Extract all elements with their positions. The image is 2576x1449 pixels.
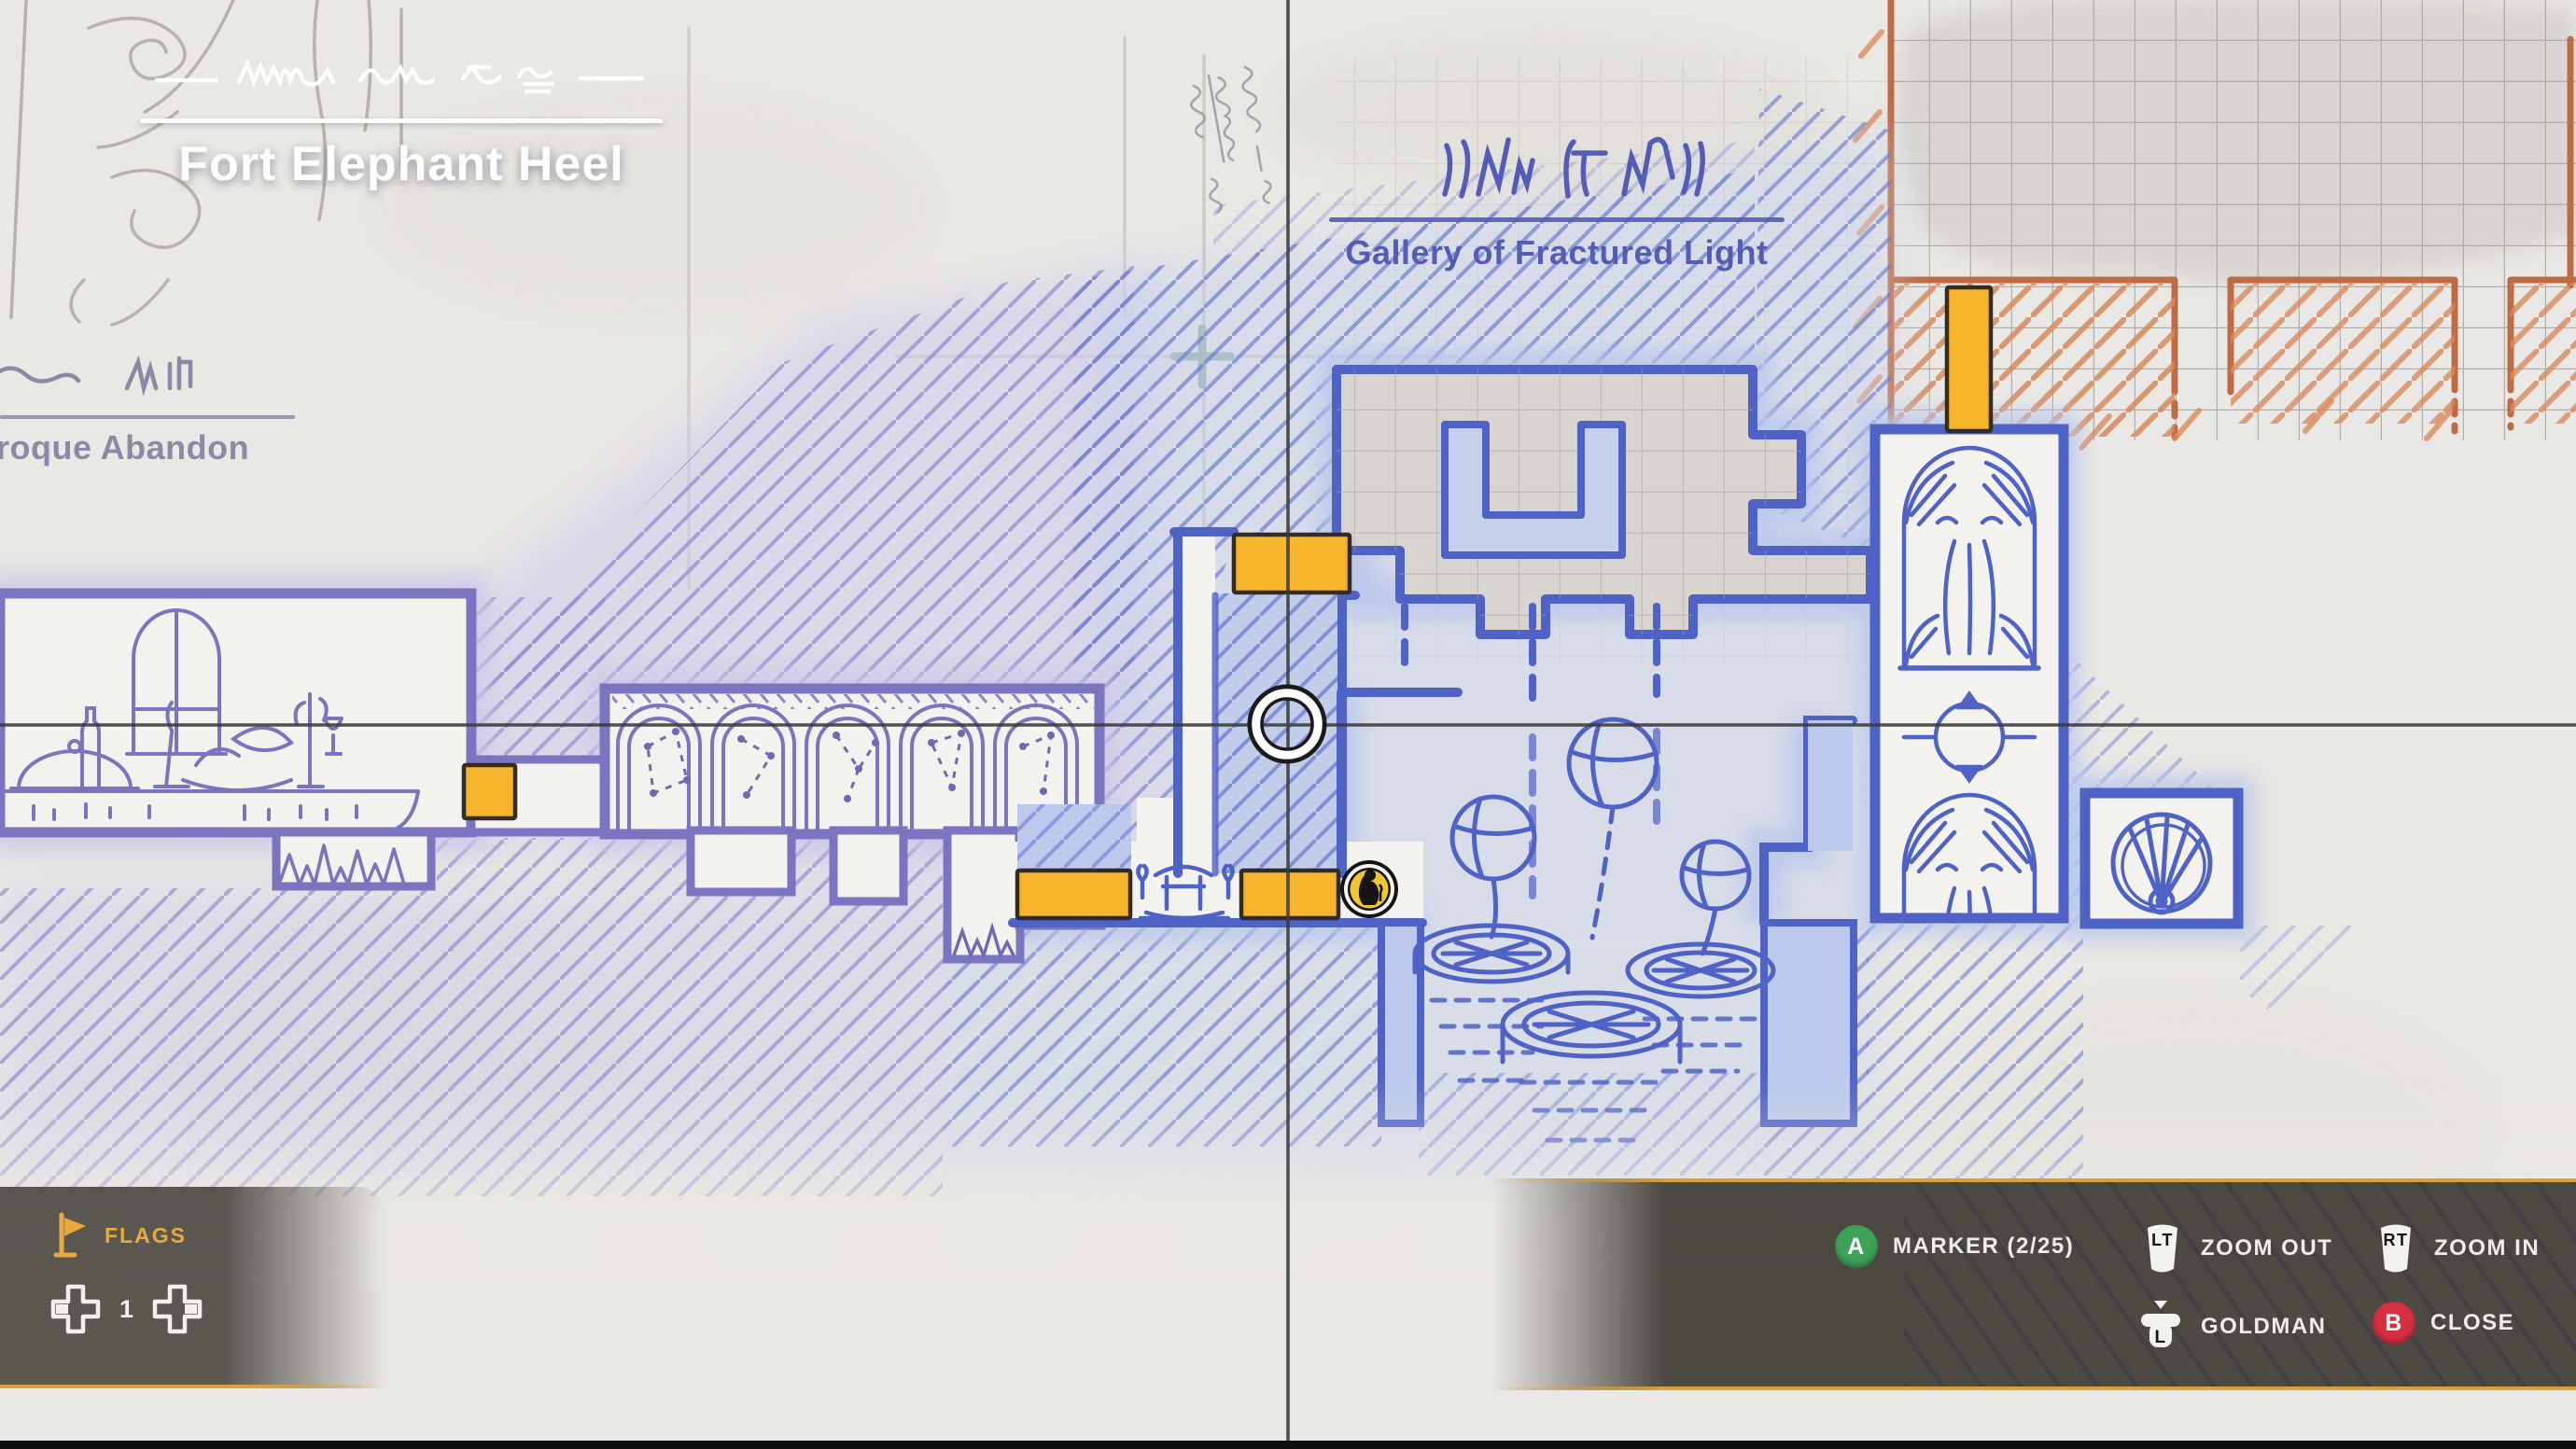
b-button-icon[interactable]: B [2373,1302,2415,1345]
label-rule [1329,217,1785,222]
label-rule [0,415,295,419]
region-title: Fort Elephant Heel [140,136,663,192]
area-label-abandon: roque Abandon [0,351,295,467]
zoom-in-button[interactable]: RT ZOOM IN [2373,1221,2540,1275]
a-button-icon[interactable]: A [1835,1225,1878,1268]
letterbox-strip [0,1441,2576,1449]
flag-page-count: 1 [119,1295,133,1324]
actions-panel: A MARKER (2/25) LT ZOOM OUT RT ZOOM IN L… [1491,1178,2576,1390]
title-rule [140,118,663,123]
glyph-script-decoration [1305,119,1809,209]
svg-text:L: L [2154,1328,2166,1347]
flags-label: FLAGS [105,1223,187,1248]
room-shell-chamber [2085,793,2238,924]
gold-divider [0,1385,383,1388]
flags-panel: FLAGS 1 [0,1187,386,1388]
flag-icon [52,1211,90,1260]
dpad-left-icon[interactable] [49,1282,103,1336]
region-title-block: Fort Elephant Heel [140,49,663,192]
close-label: CLOSE [2430,1310,2514,1336]
player-position-marker [1340,860,1398,918]
panel-hatch-texture [1904,1178,2576,1390]
goldman-button[interactable]: L GOLDMAN [2135,1298,2326,1356]
glyph-script-decoration [149,49,653,108]
dpad-right-icon[interactable] [150,1282,204,1336]
area-label-gallery-text: Gallery of Fractured Light [1305,233,1809,272]
svg-text:RT: RT [2384,1231,2409,1249]
close-button[interactable]: B CLOSE [2373,1302,2514,1345]
svg-text:LT: LT [2151,1231,2174,1249]
glyph-script-decoration [0,351,295,405]
l-stick-icon[interactable]: L [2135,1298,2186,1356]
rt-trigger-icon[interactable]: RT [2373,1221,2419,1275]
gold-divider [1491,1178,2576,1182]
gold-divider [1491,1386,2576,1390]
zoom-in-label: ZOOM IN [2434,1235,2540,1261]
marker-label: MARKER (2/25) [1893,1233,2074,1260]
marker-button[interactable]: A MARKER (2/25) [1835,1225,2074,1268]
zoom-out-button[interactable]: LT ZOOM OUT [2139,1221,2332,1275]
goldman-label: GOLDMAN [2201,1314,2326,1340]
zoom-out-label: ZOOM OUT [2201,1235,2332,1261]
lt-trigger-icon[interactable]: LT [2139,1221,2186,1275]
area-label-abandon-text: roque Abandon [0,428,295,467]
area-label-gallery: Gallery of Fractured Light [1305,119,1809,272]
